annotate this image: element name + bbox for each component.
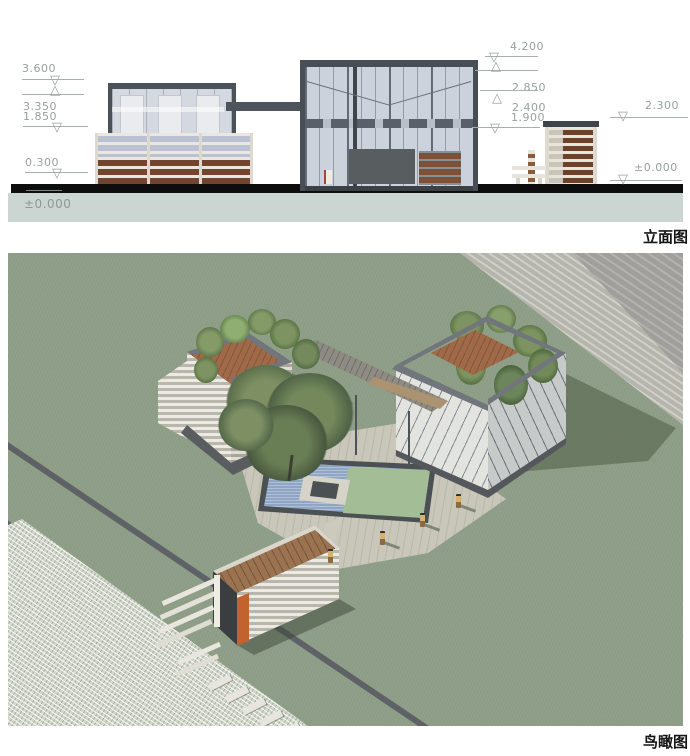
glass-door-panel (196, 95, 220, 137)
level-triangle-down: ▽ (618, 110, 628, 123)
bamboo-foliage (220, 315, 250, 343)
bench-leg (538, 178, 542, 184)
level-triangle-down: ▽ (52, 121, 62, 134)
lantern-bollard (328, 549, 333, 563)
tower-light-face (549, 127, 563, 184)
level-line (475, 70, 538, 71)
louver-post (95, 133, 98, 184)
glass-door-panel (158, 95, 182, 137)
level-triangle-down: ▽ (618, 173, 628, 186)
transom-band (305, 119, 473, 128)
louver-wood-rows (95, 157, 253, 184)
glass-door-panel (120, 95, 144, 137)
level-line (472, 127, 540, 128)
level-triangle-up: △ (492, 92, 502, 105)
pergola-post (408, 411, 410, 469)
roof-brace-right (388, 81, 471, 106)
bench-leg (516, 178, 520, 184)
tower-post (593, 127, 597, 184)
level-text: ±0.000 (634, 162, 678, 173)
level-triangle-up: △ (50, 84, 60, 97)
elevation-drawing: 3.600 ▽ △ 3.350 1.850 ▽ 0.300 ▽ ±0.000 4… (0, 0, 690, 250)
dim-tick (26, 190, 62, 191)
louver-post (199, 133, 202, 184)
ground-level-text: ±0.000 (24, 198, 71, 210)
level-text: 1.900 (511, 112, 545, 123)
connecting-beam (226, 102, 304, 111)
interior-floor-line (305, 186, 473, 191)
ground-band (8, 193, 683, 222)
interior-furniture (349, 149, 415, 184)
glass-reflection-band (112, 107, 224, 112)
aerial-label: 鸟瞰图 (643, 731, 688, 752)
lantern-bollard (456, 494, 461, 508)
lantern-bollard (380, 531, 385, 545)
level-text: 2.850 (512, 82, 546, 93)
louver-post (147, 133, 150, 184)
tree-canopy (218, 399, 274, 451)
bench-lantern (528, 150, 535, 184)
level-triangle-down: ▽ (52, 167, 62, 180)
bamboo-foliage (292, 339, 320, 369)
pergola-post (355, 395, 357, 455)
louver-post (250, 133, 253, 184)
aerial-view (8, 253, 683, 726)
roof-brace-left (307, 81, 390, 106)
louver-glass-rows (95, 133, 253, 157)
level-line (480, 90, 538, 91)
level-text: 2.300 (645, 100, 679, 111)
level-triangle-up: △ (491, 60, 501, 73)
interior-shelves (419, 151, 461, 185)
lantern-bollard (420, 513, 425, 527)
level-text: 4.200 (510, 41, 544, 52)
small-lantern (324, 170, 332, 184)
level-triangle-down: ▽ (490, 122, 500, 135)
architectural-sheet: { "elevation": { "label": "立面图", "levels… (0, 0, 690, 756)
louver-tower (545, 127, 597, 184)
bamboo-foliage (194, 357, 218, 383)
elevation-label: 立面图 (643, 226, 688, 247)
gate-frame-post (214, 575, 220, 627)
left-pavilion-louver-screen (95, 133, 253, 184)
